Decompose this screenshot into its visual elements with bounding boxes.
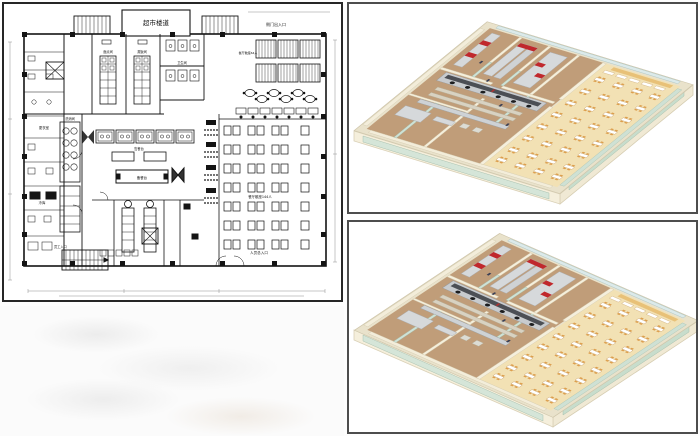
presentation-collage: 超市楼道 侧门出入口 xyxy=(0,0,700,436)
stairs-bottom xyxy=(62,250,108,270)
stairs-top-right xyxy=(202,16,238,34)
kitchen-rooms xyxy=(24,114,92,266)
counter-row xyxy=(236,108,318,118)
main-entrance-label: 人员总入口 xyxy=(250,250,268,255)
ghost-faded-area xyxy=(0,306,344,436)
building-model-a xyxy=(354,22,693,194)
serving-counter-label: 售餐台 xyxy=(134,146,144,151)
steam-rice-room-label: 蒸饭间 xyxy=(137,49,147,54)
columns xyxy=(22,32,326,266)
elevator xyxy=(46,62,64,79)
staff-dining-label: 餐厅散座64人 xyxy=(239,50,258,55)
washroom-label: 卫生间 xyxy=(177,60,187,65)
washrooms xyxy=(160,34,204,100)
render-view-b-panel xyxy=(347,220,698,434)
bottom-center-rooms xyxy=(92,192,204,266)
render-view-a-panel xyxy=(347,2,698,214)
changing-room-label: 更衣室 xyxy=(39,125,50,130)
title-block: 超市楼道 xyxy=(122,10,190,36)
serving-counters xyxy=(112,152,184,183)
render-view-b xyxy=(349,222,696,432)
main-dining-label: 餐厅散座144人 xyxy=(248,194,272,199)
left-service-wing xyxy=(24,34,64,266)
main-dining-tables xyxy=(224,126,309,249)
prep-counter-label: 备餐台 xyxy=(137,175,148,180)
staff-entrance-label: 员工入口 xyxy=(54,245,67,249)
building-model-b xyxy=(354,233,696,417)
sanitize-room-label: 洗消间 xyxy=(65,116,75,121)
floor-plan-drawing: 超市楼道 侧门出入口 xyxy=(4,4,341,300)
pastry-room-label: 面点间 xyxy=(103,49,113,54)
plan-title: 超市楼道 xyxy=(143,18,170,27)
side-entrance-label: 侧门出入口 xyxy=(266,21,286,27)
serving-line xyxy=(82,130,94,144)
stairs-top-left xyxy=(74,16,110,34)
small-modules xyxy=(100,250,138,256)
cold-storage-label: 冷库 xyxy=(39,200,46,205)
floor-plan-panel: 超市楼道 侧门出入口 xyxy=(2,2,343,302)
render-view-a xyxy=(349,4,696,212)
staff-dining xyxy=(219,114,326,266)
prep-rooms xyxy=(64,34,164,114)
